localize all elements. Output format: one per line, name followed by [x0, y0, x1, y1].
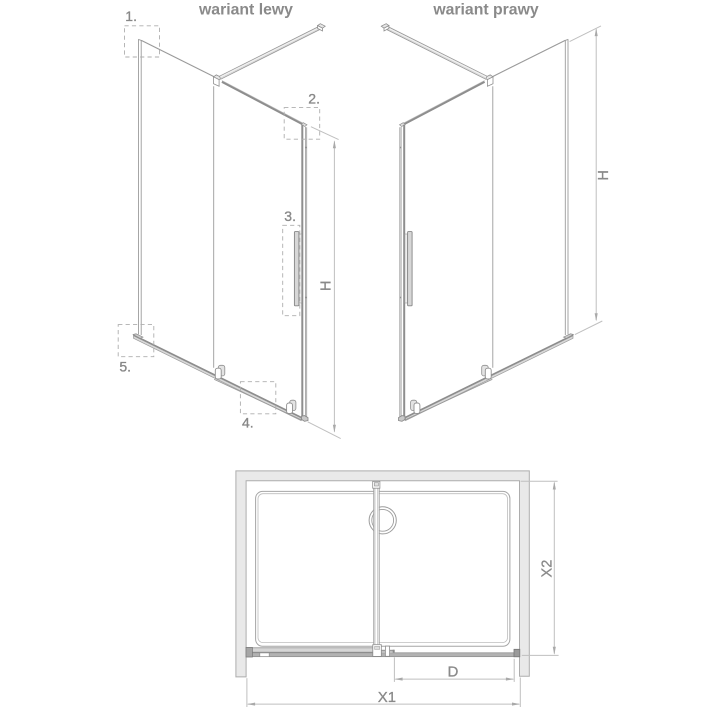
svg-text:2.: 2.: [308, 90, 320, 106]
svg-text:5.: 5.: [119, 358, 131, 374]
svg-text:H: H: [319, 281, 335, 291]
svg-text:D: D: [447, 663, 458, 680]
svg-text:wariant prawy: wariant prawy: [432, 2, 539, 19]
svg-text:wariant lewy: wariant lewy: [198, 2, 293, 19]
svg-text:1.: 1.: [125, 8, 137, 24]
svg-text:X2: X2: [540, 560, 556, 578]
svg-text:H: H: [596, 170, 612, 180]
svg-text:X1: X1: [378, 689, 396, 706]
svg-text:4.: 4.: [242, 415, 254, 431]
svg-text:3.: 3.: [284, 208, 296, 224]
